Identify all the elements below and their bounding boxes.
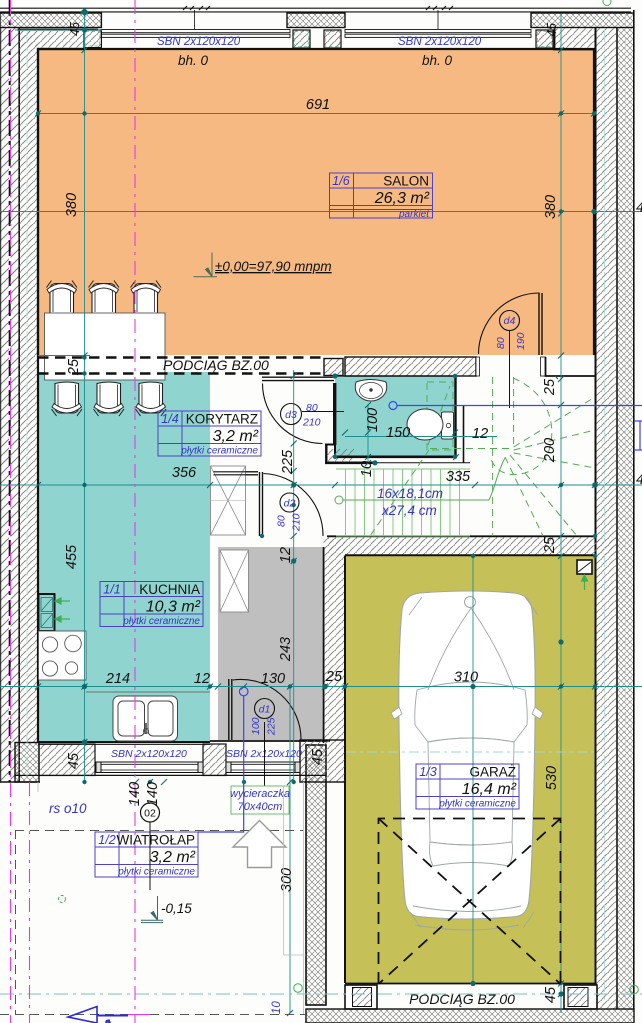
svg-text:d4: d4: [504, 315, 516, 327]
svg-text:25: 25: [66, 358, 82, 376]
svg-text:225: 225: [266, 717, 278, 736]
svg-text:243: 243: [278, 637, 294, 662]
svg-text:530: 530: [544, 766, 560, 790]
svg-text:WIATROŁAP: WIATROŁAP: [116, 833, 195, 848]
svg-text:26,3 m²: 26,3 m²: [374, 190, 430, 207]
svg-text:10: 10: [271, 1001, 283, 1014]
svg-text:10: 10: [359, 461, 375, 477]
svg-text:45: 45: [543, 986, 559, 1003]
svg-text:455: 455: [64, 544, 80, 569]
svg-text:225: 225: [280, 449, 296, 475]
svg-text:335: 335: [446, 469, 471, 485]
svg-text:płytki ceramiczne: płytki ceramiczne: [438, 799, 516, 810]
svg-text:1/2: 1/2: [98, 833, 115, 847]
svg-text:140: 140: [127, 782, 143, 806]
svg-text:rs o10: rs o10: [49, 801, 87, 816]
svg-text:±0,00=97,90 mnpm: ±0,00=97,90 mnpm: [215, 259, 332, 274]
svg-text:100: 100: [365, 408, 381, 432]
svg-text:130: 130: [261, 671, 285, 687]
svg-text:KUCHNIA: KUCHNIA: [139, 582, 200, 597]
svg-text:SBN 2x120x120: SBN 2x120x120: [157, 36, 241, 48]
svg-text:45: 45: [68, 22, 82, 36]
svg-text:płytki ceramiczne: płytki ceramiczne: [122, 616, 200, 627]
svg-text:1/6: 1/6: [332, 174, 349, 188]
svg-text:płytki ceramiczne: płytki ceramiczne: [117, 867, 195, 878]
svg-text:1/3: 1/3: [419, 765, 436, 779]
svg-text:12: 12: [278, 547, 294, 563]
svg-text:214: 214: [105, 671, 130, 687]
svg-text:3,2 m²: 3,2 m²: [213, 428, 259, 445]
svg-text:140: 140: [145, 782, 161, 806]
svg-text:80: 80: [276, 515, 288, 527]
svg-text:KORYTARZ: KORYTARZ: [186, 412, 258, 427]
svg-text:70x40cm: 70x40cm: [238, 801, 283, 813]
svg-text:200: 200: [542, 438, 558, 463]
svg-text:25: 25: [542, 378, 558, 396]
svg-text:45: 45: [310, 748, 326, 765]
svg-text:210: 210: [291, 513, 303, 532]
svg-text:d2: d2: [284, 498, 296, 510]
svg-text:x27,4 cm: x27,4 cm: [381, 503, 437, 518]
svg-text:PODCIĄG BZ.00: PODCIĄG BZ.00: [163, 357, 269, 373]
svg-text:691: 691: [306, 97, 330, 113]
svg-text:150: 150: [386, 425, 410, 441]
svg-text:1/1: 1/1: [103, 583, 120, 597]
svg-text:bh. 0: bh. 0: [178, 53, 209, 68]
svg-text:-0,15: -0,15: [161, 901, 192, 916]
svg-text:45: 45: [66, 752, 82, 769]
svg-text:10,3 m²: 10,3 m²: [146, 599, 201, 616]
svg-text:45: 45: [545, 23, 559, 37]
svg-text:16x18,1cm: 16x18,1cm: [377, 486, 443, 501]
svg-text:380: 380: [64, 193, 80, 217]
svg-text:płytki ceramiczne: płytki ceramiczne: [180, 446, 258, 457]
svg-text:4: 4: [636, 472, 642, 488]
svg-text:100: 100: [250, 717, 262, 735]
svg-text:12: 12: [194, 671, 210, 687]
svg-text:310: 310: [454, 670, 478, 686]
svg-text:d3: d3: [285, 409, 297, 421]
svg-text:380: 380: [543, 195, 559, 219]
svg-text:4: 4: [636, 200, 642, 216]
svg-text:12: 12: [472, 426, 488, 442]
svg-text:GARAŻ: GARAŻ: [469, 765, 516, 780]
svg-text:1/4: 1/4: [161, 412, 178, 426]
svg-text:25: 25: [542, 536, 558, 554]
svg-text:02: 02: [144, 808, 156, 820]
svg-text:80: 80: [306, 402, 318, 414]
svg-text:16,4 m²: 16,4 m²: [462, 781, 517, 798]
svg-text:80: 80: [495, 337, 507, 349]
svg-text:300: 300: [279, 868, 295, 892]
svg-text:SALON: SALON: [383, 174, 429, 189]
svg-text:210: 210: [302, 417, 321, 429]
svg-text:190: 190: [515, 332, 527, 350]
svg-text:parkiet: parkiet: [398, 209, 430, 220]
svg-text:d1: d1: [259, 704, 271, 716]
svg-text:PODCIĄG BZ.00: PODCIĄG BZ.00: [409, 991, 515, 1007]
svg-text:wycieraczka: wycieraczka: [230, 788, 290, 800]
svg-text:bh. 0: bh. 0: [422, 53, 453, 68]
svg-text:25: 25: [325, 669, 343, 685]
svg-text:356: 356: [172, 465, 197, 481]
svg-text:3,2 m²: 3,2 m²: [150, 849, 196, 866]
svg-text:SBN 2x120x120: SBN 2x120x120: [111, 748, 187, 760]
svg-text:SBN 2x120x120: SBN 2x120x120: [398, 36, 482, 48]
